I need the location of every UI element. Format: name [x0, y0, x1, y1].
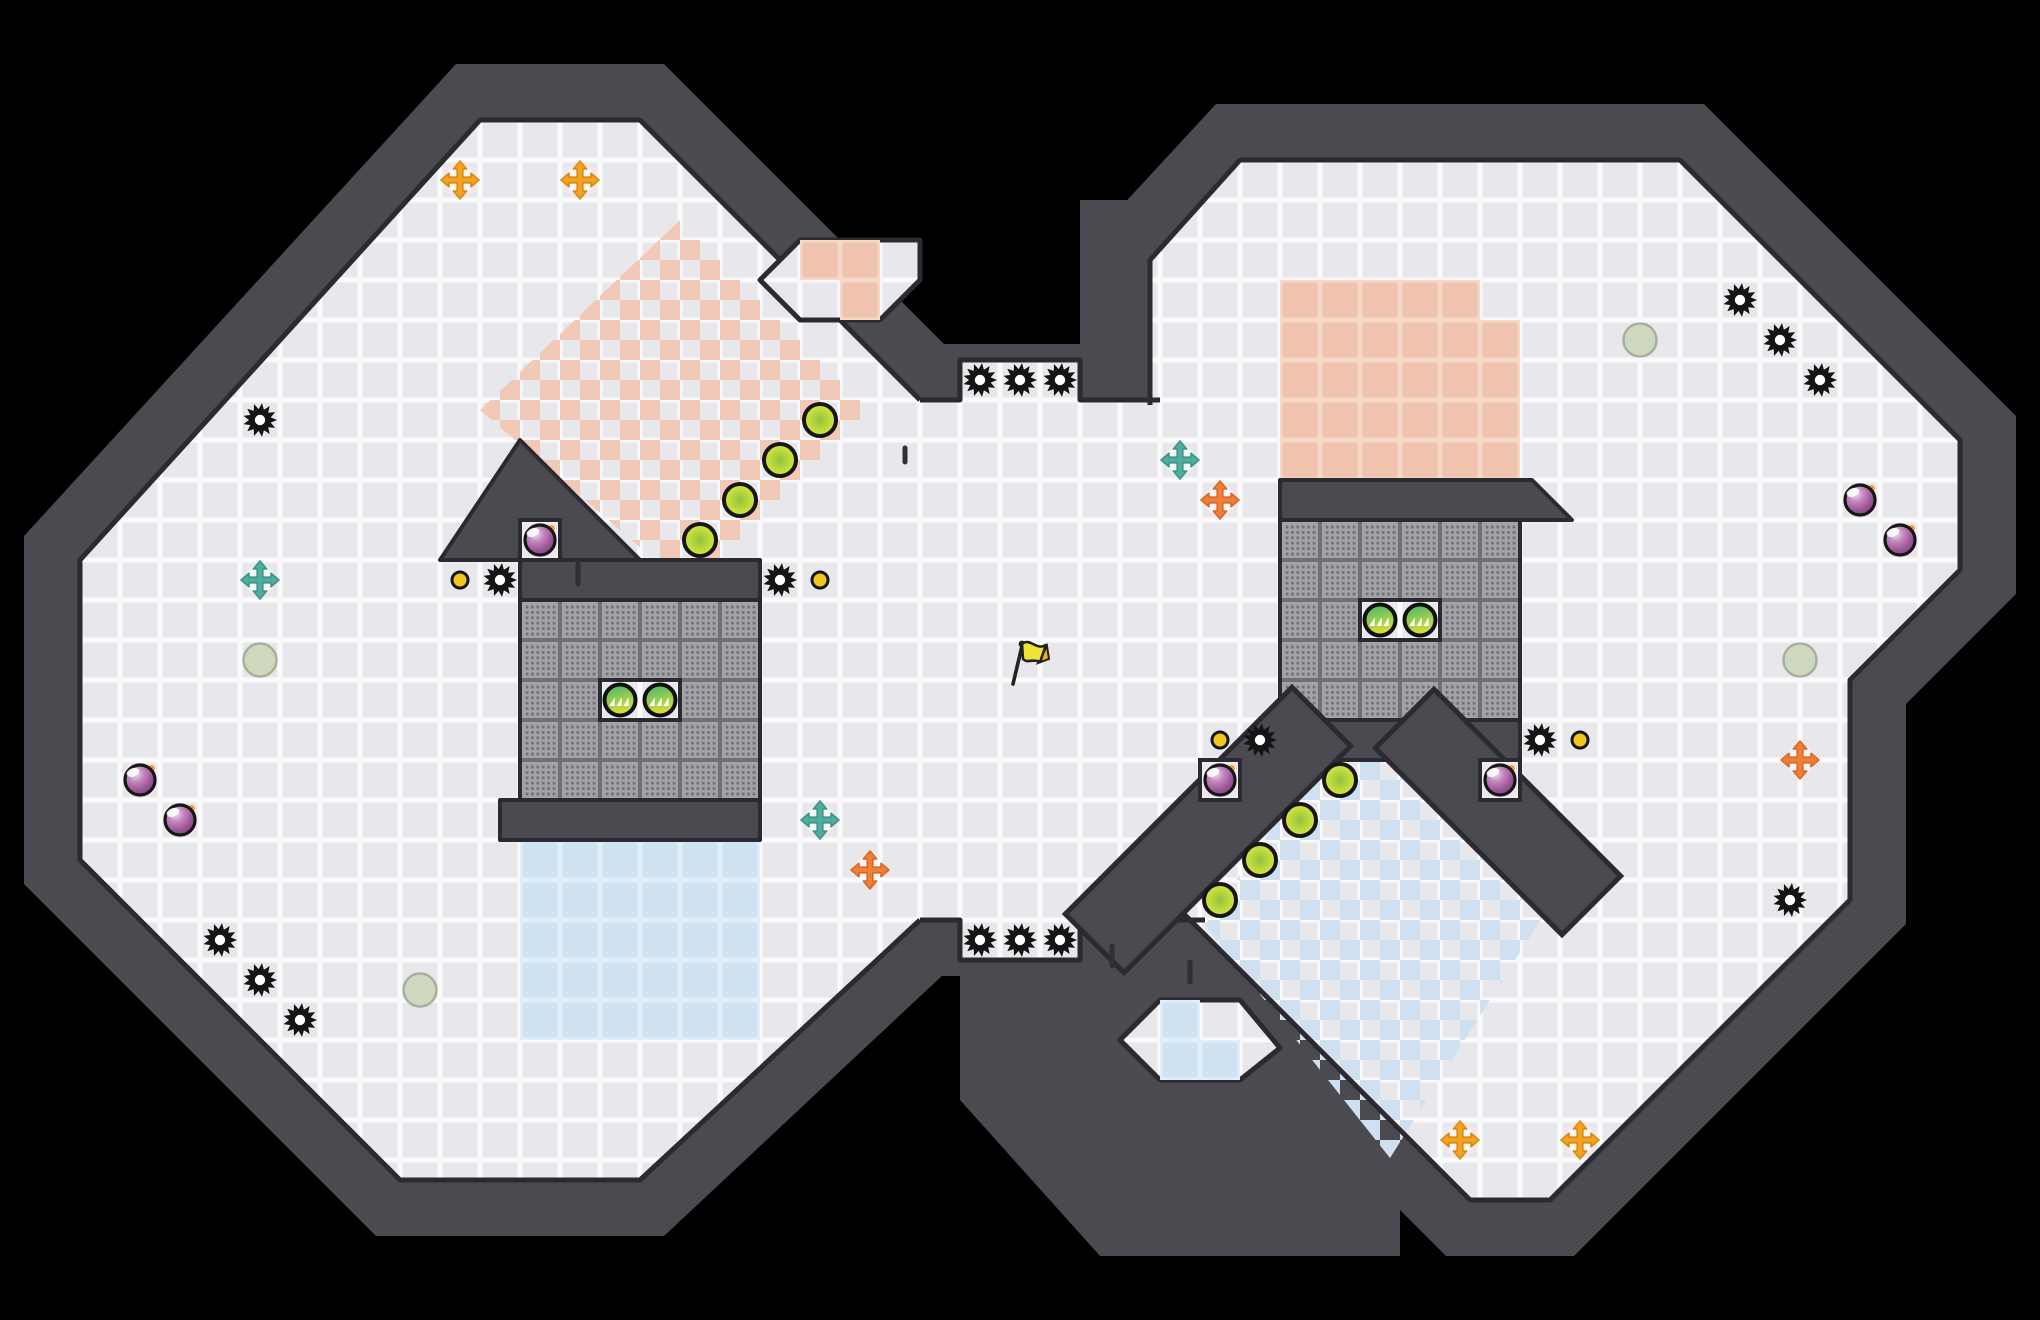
bomb-orb [165, 805, 195, 835]
wall-band [500, 800, 760, 840]
pink-pocket-tile [800, 240, 880, 280]
pale-marker-dot [1784, 644, 1817, 677]
bomb-orb [1205, 765, 1235, 795]
gold-coin [812, 572, 828, 588]
gold-coin [452, 572, 468, 588]
gold-orb [724, 484, 756, 516]
bomb-orb [1885, 525, 1915, 555]
gold-orb [804, 404, 836, 436]
bomb-orb [125, 765, 155, 795]
level-map [0, 0, 2040, 1320]
game-canvas[interactable] [0, 0, 2040, 1320]
blue-pocket-tile [1160, 1000, 1200, 1040]
gold-coin [1212, 732, 1228, 748]
boost-pad-orb [605, 685, 636, 716]
pale-marker-dot [1624, 324, 1657, 357]
pale-marker-dot [244, 644, 277, 677]
gold-coin [1572, 732, 1588, 748]
blue-tile-zone [520, 840, 760, 1040]
bomb-orb [525, 525, 555, 555]
gold-orb [1324, 764, 1356, 796]
wall-band [1280, 480, 1572, 520]
wall-band [520, 560, 760, 600]
gold-orb [764, 444, 796, 476]
boost-pad-orb [1405, 605, 1436, 636]
pink-pocket-tile [840, 280, 880, 320]
blue-pocket-tile [1160, 1040, 1240, 1080]
bomb-orb [1485, 765, 1515, 795]
gold-orb [1204, 884, 1236, 916]
boost-pad-orb [645, 685, 676, 716]
pink-tile-zone [1280, 280, 1480, 320]
boost-pad-orb [1365, 605, 1396, 636]
gold-orb [1284, 804, 1316, 836]
bomb-orb [1845, 485, 1875, 515]
gold-orb [1244, 844, 1276, 876]
pink-tile-zone [1280, 320, 1520, 480]
pale-marker-dot [404, 974, 437, 1007]
gold-orb [684, 524, 716, 556]
